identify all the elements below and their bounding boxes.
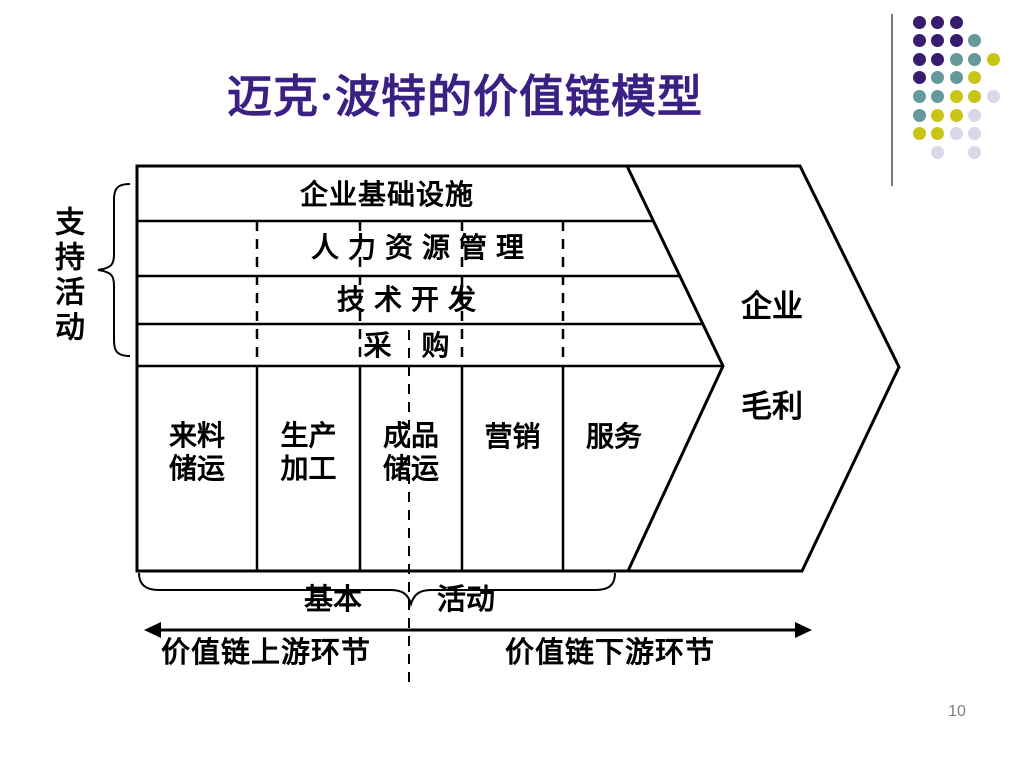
downstream-label: 价值链下游环节 [460, 637, 760, 669]
purple-dot [931, 34, 944, 47]
purple-dot [913, 16, 926, 29]
arrow-outline [137, 166, 899, 571]
teal-dot [913, 90, 926, 103]
row-firm-infrastructure: 企业基础设施 [187, 180, 587, 212]
margin-label-line1: 企业 [712, 290, 832, 324]
yellow-dot [931, 109, 944, 122]
purple-dot [913, 71, 926, 84]
row-procurement: 采 购 [207, 331, 607, 363]
purple-dot [950, 34, 963, 47]
dots-decoration [880, 0, 1020, 200]
cell-operations: 生产 加工 [258, 420, 359, 486]
yellow-dot [987, 53, 1000, 66]
cell-inbound-logistics: 来料 储运 [138, 420, 256, 486]
teal-dot [950, 53, 963, 66]
lavender-dot [968, 127, 981, 140]
arrow-right-head [795, 622, 812, 638]
slide: 迈克·波特的价值链模型 支持活动 企业基础设施 人 力 资 源 管 理 技 术 … [0, 0, 1024, 768]
left-brace [98, 184, 130, 356]
yellow-dot [950, 90, 963, 103]
upstream-label: 价值链上游环节 [116, 637, 416, 669]
primary-activities-label-left: 基本 [273, 585, 393, 615]
yellow-dot [931, 127, 944, 140]
slide-title: 迈克·波特的价值链模型 [140, 66, 790, 128]
row-human-resources: 人 力 资 源 管 理 [218, 233, 618, 265]
yellow-dot [913, 127, 926, 140]
lavender-dot [987, 90, 1000, 103]
lavender-dot [968, 146, 981, 159]
lavender-dot [968, 109, 981, 122]
teal-dot [913, 109, 926, 122]
purple-dot [931, 16, 944, 29]
teal-dot [950, 71, 963, 84]
support-activities-label: 支持活动 [49, 201, 83, 351]
cell-service: 服务 [564, 421, 664, 454]
purple-dot [931, 53, 944, 66]
lavender-dot [931, 146, 944, 159]
teal-dot [931, 71, 944, 84]
lavender-dot [950, 127, 963, 140]
page-number: 10 [938, 702, 976, 722]
yellow-dot [950, 109, 963, 122]
purple-dot [950, 16, 963, 29]
teal-dot [968, 34, 981, 47]
yellow-dot [968, 90, 981, 103]
primary-activities-label-right: 活动 [406, 585, 526, 615]
purple-dot [913, 53, 926, 66]
yellow-dot [968, 71, 981, 84]
margin-label-line2: 毛利 [712, 390, 832, 424]
purple-dot [913, 34, 926, 47]
upstream-downstream-arrow [144, 622, 812, 638]
arrow-left-head [144, 622, 161, 638]
cell-outbound-logistics: 成品 储运 [361, 420, 461, 486]
teal-dot [968, 53, 981, 66]
row-technology-development: 技 术 开 发 [207, 285, 607, 317]
teal-dot [931, 90, 944, 103]
cell-marketing: 营销 [463, 421, 562, 454]
inner-chevron-edge [627, 166, 723, 571]
